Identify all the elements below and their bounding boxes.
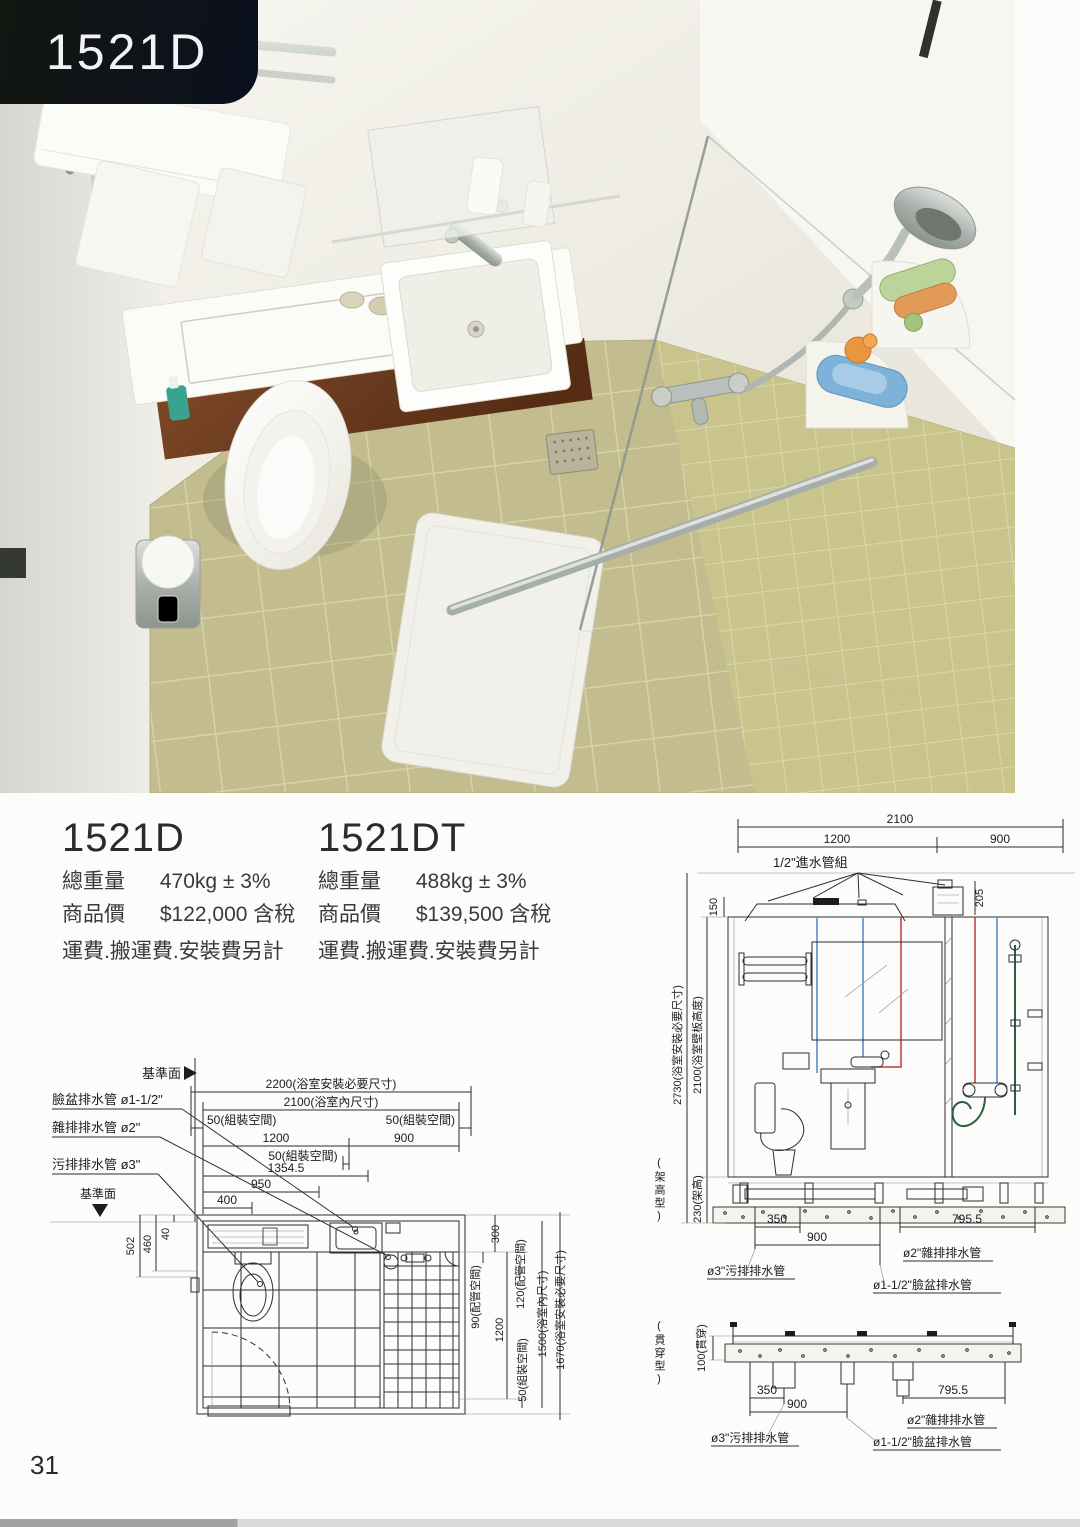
plan-right-dims: 300 90(配管空間) 1200 120(配管空間) 50(組裝空間) 150…: [459, 1212, 570, 1420]
elev-mirror: [812, 942, 942, 1040]
bathroom-photo-art: [0, 0, 1015, 793]
inlet-leader-fan: [768, 873, 945, 901]
bathroom-photo: 1521D: [0, 0, 1015, 793]
elev-sink: [821, 1069, 875, 1149]
elev-label-soil: ø3"污排排水管: [707, 1263, 785, 1278]
fee-note: 運費.搬運費.安裝費另計: [62, 935, 312, 965]
elev-top-dims: 2100 1200 900: [738, 812, 1063, 853]
floor-drain: [546, 429, 599, 475]
dim-1354: 1354.5: [268, 1161, 305, 1175]
price-value: $139,500 含稅: [416, 903, 551, 926]
dim-40: 40: [160, 1228, 172, 1240]
product-model: 1521DT: [318, 816, 568, 861]
dim-460: 460: [142, 1235, 154, 1253]
shower-drain-symbol: [384, 1255, 398, 1269]
dim-50: 50(組裝空間): [515, 1338, 529, 1402]
elev-dim-230: 230(架高): [690, 1175, 704, 1223]
elev-small-dims: 150 205: [708, 881, 986, 917]
elev-faucet: [851, 1051, 889, 1067]
bath-mat: [379, 511, 606, 790]
plan-paper-holder: [191, 1278, 199, 1292]
elev-dim-150: 150: [708, 898, 720, 916]
elev-type-label: (架高型): [653, 1157, 666, 1224]
dim-1200: 1200: [263, 1131, 290, 1145]
page-edge-strip: [0, 1519, 1080, 1527]
price-label: 商品價: [62, 903, 154, 927]
dim-asm-left: 50(組裝空間): [207, 1113, 276, 1127]
mirror-reflection: [368, 106, 555, 247]
weight-row: 總重量 470kg ± 3%: [62, 870, 312, 894]
elevation-drawing: 2100 1200 900 1/2"進水管組 150 205: [645, 805, 1080, 1295]
elev-dim-205: 205: [974, 889, 986, 907]
product-model: 1521D: [62, 816, 312, 861]
weight-label: 總重量: [62, 870, 154, 894]
product-spec-1521d: 1521D 總重量 470kg ± 3% 商品價 $122,000 含稅 運費.…: [62, 816, 312, 965]
elev-dim-900b: 900: [807, 1230, 827, 1244]
elev-dim-2100: 2100: [887, 812, 914, 826]
datum-arrow-down: [92, 1204, 108, 1217]
dim-1670: 1670(浴室安裝必要尺寸): [553, 1250, 567, 1370]
section-dims: 350 900 795.5 ø2"雜排排水管 ø3"污排排水管 ø1-1/2"臉…: [711, 1362, 1005, 1450]
elev-dim-1200: 1200: [824, 832, 851, 846]
elev-control-panel: [783, 1053, 809, 1069]
fee-note: 運費.搬運費.安裝費另計: [318, 935, 568, 965]
plan-control: [386, 1223, 400, 1233]
elev-base: [713, 1177, 1065, 1223]
wall-stop: [0, 548, 26, 578]
price-row: 商品價 $122,000 含稅: [62, 903, 312, 927]
section-label-misc: ø2"雜排排水管: [907, 1412, 985, 1427]
datum-label-top: 基準面: [142, 1066, 181, 1081]
cabin-top: [745, 898, 905, 921]
elev-dim-350: 350: [767, 1212, 787, 1226]
price-row: 商品價 $139,500 含稅: [318, 903, 568, 927]
leader-basin: 臉盆排水管 ø1-1/2": [52, 1092, 163, 1107]
weight-value: 488kg ± 3%: [416, 870, 527, 893]
weight-value: 470kg ± 3%: [160, 870, 271, 893]
leader-soil: 污排排水管 ø3": [52, 1157, 141, 1172]
dim-2200: 2200(浴室安裝必要尺寸): [266, 1076, 397, 1091]
plan-horizontal-dims: 2200(浴室安裝必要尺寸) 2100(浴室內尺寸) 50(組裝空間) 50(組…: [191, 1076, 471, 1214]
vent-fan-unit: [933, 880, 963, 915]
plan-sink: [330, 1223, 382, 1253]
dim-120: 120(配管空間): [513, 1239, 527, 1309]
model-badge: 1521D: [0, 0, 258, 104]
section-dim-900: 900: [787, 1397, 807, 1411]
leader-misc: 雜排排水管 ø2": [52, 1120, 141, 1135]
catalog-page: 1521D 1521D 總重量 470kg ± 3% 商品價 $122,000 …: [0, 0, 1080, 1527]
plan-room: [191, 1215, 465, 1416]
elev-dim-795: 795.5: [952, 1212, 982, 1226]
plan-corner-shelf: [445, 1252, 459, 1266]
floor-grid: [203, 1252, 380, 1408]
section-dim-350: 350: [757, 1383, 777, 1397]
elev-towel-bar: [739, 953, 811, 985]
elev-toilet: [755, 1083, 804, 1175]
page-number: 31: [30, 1450, 59, 1481]
section-dim-795: 795.5: [938, 1383, 968, 1397]
dim-950: 950: [251, 1177, 271, 1191]
datum-label-bottom: 基準面: [80, 1186, 116, 1201]
plan-toilet: [233, 1252, 273, 1321]
weight-row: 總重量 488kg ± 3%: [318, 870, 568, 894]
dim-1500: 1500(浴室內尺寸): [535, 1271, 549, 1358]
dim-300: 300: [490, 1225, 502, 1243]
dim-2100: 2100(浴室內尺寸): [284, 1094, 379, 1109]
soap-dish: [340, 292, 364, 308]
plan-left-dims: 502 460 40: [125, 1215, 197, 1277]
floor-plan-drawing: 基準面 2200(浴室安裝必要尺寸) 2100(浴室內尺寸) 50(組裝空間) …: [50, 1052, 625, 1467]
product-spec-1521dt: 1521DT 總重量 488kg ± 3% 商品價 $139,500 含稅 運費…: [318, 816, 568, 965]
section-label-soil: ø3"污排排水管: [711, 1430, 789, 1445]
section-label-basin: ø1-1/2"臉盆排水管: [873, 1434, 972, 1449]
paper-holder: [136, 536, 200, 628]
weight-label: 總重量: [318, 870, 410, 894]
elev-dim-900: 900: [990, 832, 1010, 846]
shower-grid: [384, 1252, 459, 1408]
dim-400: 400: [217, 1193, 237, 1207]
elev-dim-2730: 2730(浴室安裝必要尺寸): [670, 985, 684, 1105]
dim-900: 900: [394, 1131, 414, 1145]
inlet-pipe-label: 1/2"進水管組: [773, 855, 848, 870]
elev-label-basin: ø1-1/2"臉盆排水管: [873, 1277, 972, 1292]
elev-dim-2100w: 2100(浴室壁板高度): [690, 996, 704, 1094]
section-dim-100: 100(貫穿): [694, 1324, 708, 1372]
section-drawing: (貫穿型) 100(貫穿) 350 900: [645, 1298, 1080, 1458]
dim-502: 502: [125, 1237, 137, 1255]
price-value: $122,000 含稅: [160, 903, 295, 926]
cabin-body: [728, 917, 1048, 1177]
dim-1200-v: 1200: [494, 1318, 506, 1342]
dim-90: 90(配管空間): [468, 1265, 482, 1329]
dim-asm-right: 50(組裝空間): [386, 1113, 455, 1127]
elev-left-dims: 2730(浴室安裝必要尺寸) 2100(浴室壁板高度) 230(架高) (架高型…: [653, 873, 728, 1224]
vessel-sink: [380, 240, 571, 412]
plan-door: [208, 1332, 290, 1416]
section-type-label: (貫穿型): [653, 1320, 666, 1387]
model-badge-label: 1521D: [46, 23, 208, 81]
elev-label-misc: ø2"雜排排水管: [903, 1245, 981, 1260]
price-label: 商品價: [318, 903, 410, 927]
